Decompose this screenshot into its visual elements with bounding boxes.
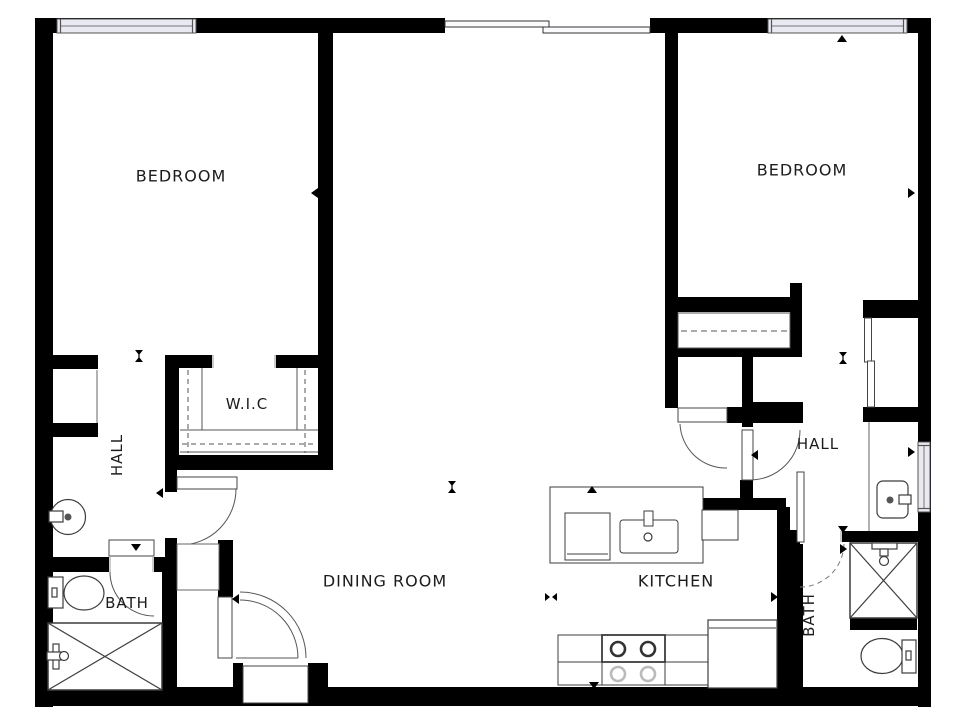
room-label-hall-left: HALL <box>108 434 126 476</box>
measure-marker <box>156 488 163 498</box>
wall <box>165 470 177 492</box>
drain <box>644 533 652 541</box>
shower <box>47 623 162 690</box>
shower <box>850 543 917 618</box>
refrigerator <box>708 620 777 688</box>
wall <box>863 300 920 318</box>
wall <box>53 355 98 369</box>
measure-marker <box>232 594 239 604</box>
measure-marker <box>451 481 452 493</box>
burner <box>641 667 655 681</box>
wall <box>727 407 757 423</box>
wall <box>777 507 790 688</box>
wall <box>740 480 753 500</box>
window <box>768 19 907 33</box>
wall <box>35 557 109 572</box>
wall <box>850 618 917 630</box>
room-label-dining-room: DINING ROOM <box>323 572 447 591</box>
burner <box>611 667 625 681</box>
measure-marker <box>311 188 318 198</box>
wall <box>678 297 790 312</box>
wall <box>700 498 786 510</box>
measure-marker <box>908 188 915 198</box>
floor-plan: BEDROOM BEDROOM W.I.C HALL HALL BATH BAT… <box>0 0 957 726</box>
measure-marker <box>138 350 139 362</box>
measure-marker <box>771 592 778 602</box>
wall <box>35 423 98 437</box>
kitchen-cabinet <box>702 510 738 540</box>
wall <box>233 663 243 705</box>
room-label-wic: W.I.C <box>226 395 269 413</box>
burner <box>641 642 655 656</box>
toilet <box>861 639 916 674</box>
measure-marker <box>545 593 550 601</box>
wall <box>753 402 803 423</box>
kitchen-bottom-counter <box>558 635 710 685</box>
room-label-bath-left: BATH <box>105 594 149 612</box>
door-opening <box>800 529 842 544</box>
round-sink <box>49 500 86 535</box>
vanity-sink <box>877 481 911 518</box>
closet-rod <box>678 313 790 348</box>
room-label-bath-right: BATH <box>800 593 818 637</box>
wall <box>165 368 179 470</box>
door-opening <box>109 556 154 573</box>
sliding-closet-doors <box>865 318 875 407</box>
door-hall-right-a <box>678 408 727 468</box>
coat-closet <box>177 544 219 590</box>
measure-marker <box>908 447 915 457</box>
wall <box>162 572 177 690</box>
door-hall-to-dining <box>177 477 237 545</box>
wall <box>218 540 233 597</box>
window <box>57 19 196 33</box>
room-label-kitchen: KITCHEN <box>638 572 714 591</box>
toilet <box>48 576 104 610</box>
room-label-bedroom-left: BEDROOM <box>136 167 227 186</box>
faucet <box>644 511 653 526</box>
wall <box>665 33 678 408</box>
walls-layer <box>35 18 931 707</box>
wall <box>678 348 802 357</box>
window <box>918 442 930 512</box>
wall <box>842 531 918 542</box>
entry-door <box>218 592 306 658</box>
bedroom-door-opening <box>802 300 863 318</box>
door-hall-right-b <box>742 430 800 480</box>
wall <box>308 663 328 688</box>
dishwasher <box>565 513 610 560</box>
closet-opening <box>212 354 276 369</box>
entry-door-opening <box>243 666 308 703</box>
measure-marker <box>552 593 557 601</box>
measure-marker <box>837 35 847 42</box>
wall <box>154 557 177 572</box>
wall <box>790 283 802 357</box>
sliding-glass-door <box>445 21 650 33</box>
room-label-bedroom-right: BEDROOM <box>757 161 848 180</box>
wall <box>863 407 920 422</box>
stove <box>602 635 665 685</box>
wall <box>318 18 333 470</box>
burner <box>611 642 625 656</box>
wall <box>165 455 333 470</box>
wall <box>918 18 931 707</box>
wall <box>165 538 177 557</box>
room-label-hall-right: HALL <box>797 435 839 453</box>
kitchen-counter <box>550 487 703 563</box>
measure-marker <box>842 352 843 364</box>
